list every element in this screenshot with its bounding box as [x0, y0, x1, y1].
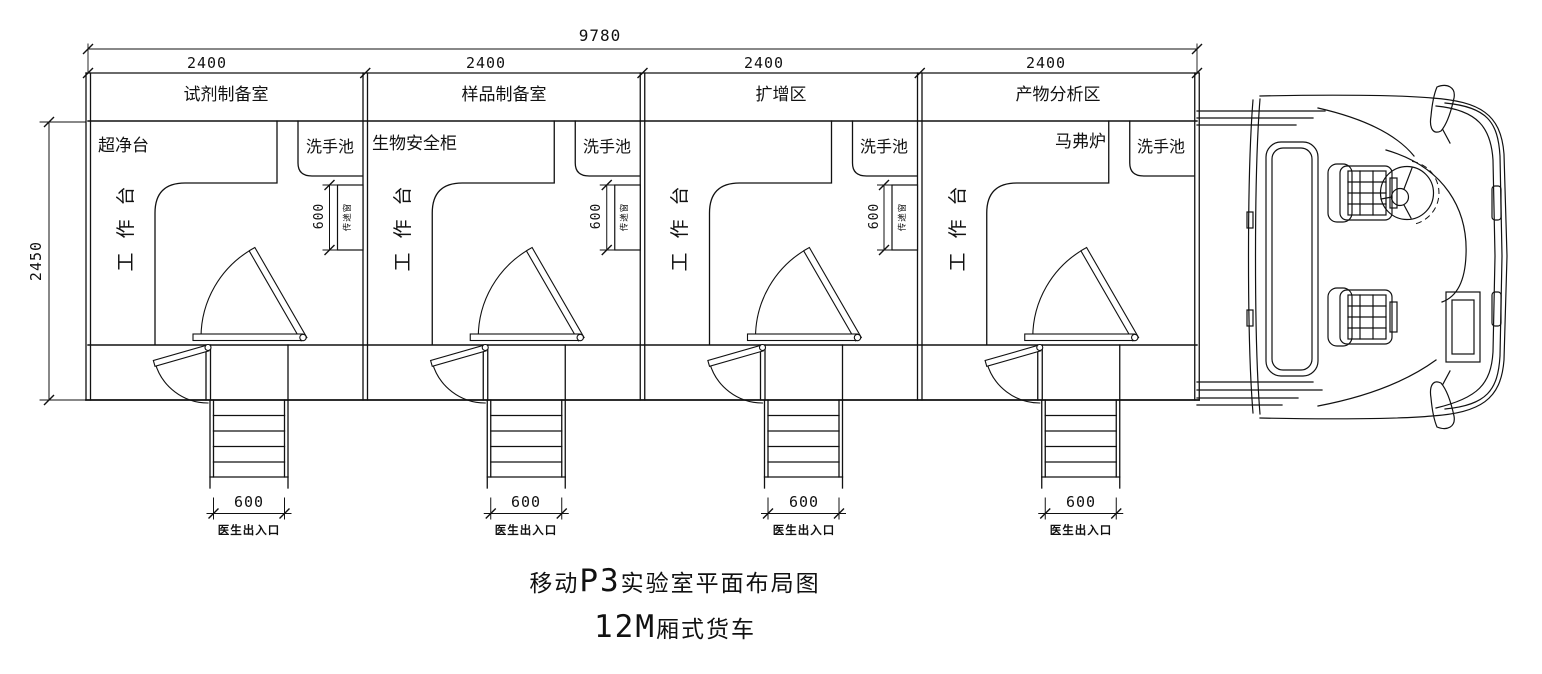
floorplan-canvas: 9780 2450 2400 2400 2400 2400 试剂制备室 样品制备…: [0, 0, 1542, 674]
dim-room-width-1: 2400: [167, 56, 247, 71]
dim-pass-window-3: 600: [868, 186, 884, 246]
dim-exit-3: 600: [769, 495, 839, 510]
workbench-label-3: 工作台: [671, 162, 693, 282]
dim-exit-1: 600: [214, 495, 284, 510]
pass-window-label-2: 传递窗: [620, 192, 632, 242]
room-name-amplification: 扩增区: [691, 86, 871, 103]
equipment-clean-bench: 超净台: [98, 137, 149, 154]
title-suffix: 实验室平面布局图: [621, 570, 821, 596]
sink-label-2: 洗手池: [562, 140, 652, 156]
dim-exit-2: 600: [491, 495, 561, 510]
dim-room-width-3: 2400: [724, 56, 804, 71]
workbench-label-4: 工作台: [949, 162, 971, 282]
equipment-biosafety-cabinet: 生物安全柜: [372, 135, 457, 152]
room-name-reagent-prep: 试剂制备室: [136, 86, 316, 103]
doctor-entrance-label-2: 医生出入口: [476, 526, 576, 538]
doctor-entrance-label-3: 医生出入口: [754, 526, 854, 538]
sink-label-1: 洗手池: [285, 140, 375, 156]
dim-overall-depth: 2450: [29, 225, 47, 297]
drawing-title: 移动P3实验室平面布局图: [430, 566, 920, 597]
doctor-entrance-label-1: 医生出入口: [199, 526, 299, 538]
room-name-sample-prep: 样品制备室: [414, 86, 594, 103]
sink-label-3: 洗手池: [839, 140, 929, 156]
truck-cab-top-view: [1197, 85, 1507, 428]
dim-pass-window-1: 600: [313, 186, 329, 246]
dim-room-width-4: 2400: [1006, 56, 1086, 71]
workbench-label-2: 工作台: [394, 162, 416, 282]
title-prefix: 移动: [529, 570, 579, 596]
doctor-entrance-label-4: 医生出入口: [1031, 526, 1131, 538]
workbench-label-1: 工作台: [117, 162, 139, 282]
equipment-muffle-furnace: 马弗炉: [986, 133, 1106, 150]
pass-window-label-3: 传递窗: [898, 192, 910, 242]
dim-overall-width: 9780: [555, 28, 645, 44]
drawing-subtitle: 12M厢式货车: [430, 612, 920, 643]
dim-room-width-2: 2400: [446, 56, 526, 71]
title-code-p3: P3: [579, 563, 620, 599]
subtitle-suffix: 厢式货车: [656, 616, 756, 642]
room-name-product-analysis: 产物分析区: [968, 86, 1148, 103]
sink-label-4: 洗手池: [1116, 140, 1206, 156]
dim-pass-window-2: 600: [590, 186, 606, 246]
dim-exit-4: 600: [1046, 495, 1116, 510]
subtitle-code-12m: 12M: [594, 609, 656, 645]
pass-window-label-1: 传递窗: [343, 192, 355, 242]
